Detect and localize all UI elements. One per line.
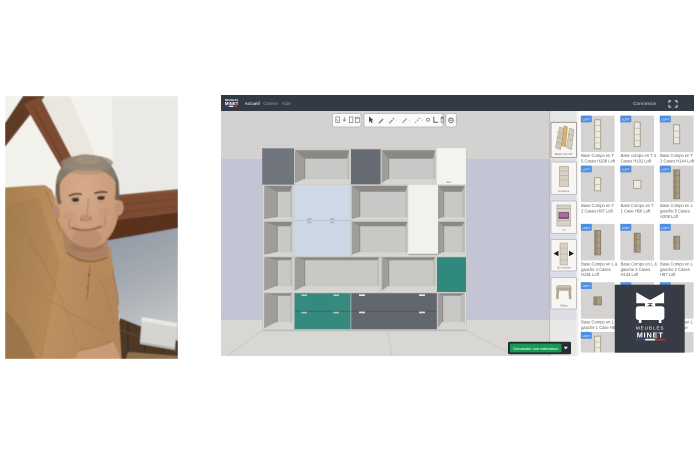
svg-text:gauche 1 Case H56: gauche 1 Case H56	[581, 325, 618, 330]
svg-text:LOFT: LOFT	[661, 118, 669, 122]
svg-text:TV: TV	[562, 228, 566, 232]
svg-text:LOFT: LOFT	[661, 168, 669, 172]
svg-text:2 Cases H97 Loft: 2 Cases H97 Loft	[581, 209, 613, 214]
svg-text:H191 Loft: H191 Loft	[581, 272, 600, 277]
svg-text:MINET: MINET	[637, 330, 664, 339]
svg-text:Base Compo en L à: Base Compo en L à	[581, 320, 618, 325]
svg-text:Base Compo en L à: Base Compo en L à	[660, 261, 694, 266]
svg-text:MINET: MINET	[225, 101, 239, 106]
svg-text:Base Compo en T: Base Compo en T	[660, 153, 693, 158]
svg-text:Galerie: Galerie	[263, 101, 278, 106]
svg-text:Base Compo en L à: Base Compo en L à	[660, 203, 694, 208]
svg-text:Tables: Tables	[560, 303, 568, 307]
svg-text:gauche 3 Cases: gauche 3 Cases	[621, 267, 651, 272]
svg-text:Cases H191 Loft: Cases H191 Loft	[621, 159, 652, 164]
svg-text:Armoires: Armoires	[558, 189, 569, 193]
svg-text:5 Cases H208 Loft: 5 Cases H208 Loft	[581, 159, 616, 164]
svg-text:3 Cases H144 Loft: 3 Cases H144 Loft	[660, 159, 694, 164]
svg-text:Aide: Aide	[282, 101, 292, 106]
svg-text:Base Compo en T: Base Compo en T	[581, 153, 614, 158]
svg-text:Bases loft L&T: Bases loft L&T	[555, 152, 573, 156]
svg-text:LOFT: LOFT	[582, 226, 590, 230]
svg-text:Base Compo en T: Base Compo en T	[581, 203, 614, 208]
svg-text:H97 Loft: H97 Loft	[660, 272, 676, 277]
svg-text:LOFT: LOFT	[582, 168, 590, 172]
svg-text:LOFT: LOFT	[661, 226, 669, 230]
svg-text:Base compo en T 4: Base compo en T 4	[621, 153, 657, 158]
svg-text:LOFT: LOFT	[582, 118, 590, 122]
svg-text:LOFT: LOFT	[622, 118, 630, 122]
svg-text:Connexion: Connexion	[633, 101, 657, 107]
svg-text:H208 Loft: H208 Loft	[660, 214, 679, 219]
svg-text:Base Compo en T: Base Compo en T	[621, 203, 654, 208]
svg-text:Demander une estimation: Demander une estimation	[513, 346, 558, 351]
svg-text:Sur mesure: Sur mesure	[557, 265, 571, 269]
svg-text:gauche 4 Cases: gauche 4 Cases	[581, 267, 611, 272]
svg-text:gauche 2 Cases: gauche 2 Cases	[660, 267, 690, 272]
svg-text:H144 Loft: H144 Loft	[621, 272, 640, 277]
svg-text:1 Case H56 Loft: 1 Case H56 Loft	[621, 209, 651, 214]
svg-text:gauche 5 Cases: gauche 5 Cases	[660, 209, 690, 214]
svg-text:Accueil: Accueil	[245, 101, 260, 106]
svg-text:Base Compo en L à: Base Compo en L à	[621, 261, 658, 266]
svg-text:LOFT: LOFT	[622, 168, 630, 172]
svg-text:LOFT: LOFT	[582, 284, 590, 288]
svg-text:LOFT: LOFT	[582, 334, 590, 338]
svg-text:Base Compo en L à: Base Compo en L à	[581, 261, 618, 266]
svg-text:LOFT: LOFT	[622, 226, 630, 230]
